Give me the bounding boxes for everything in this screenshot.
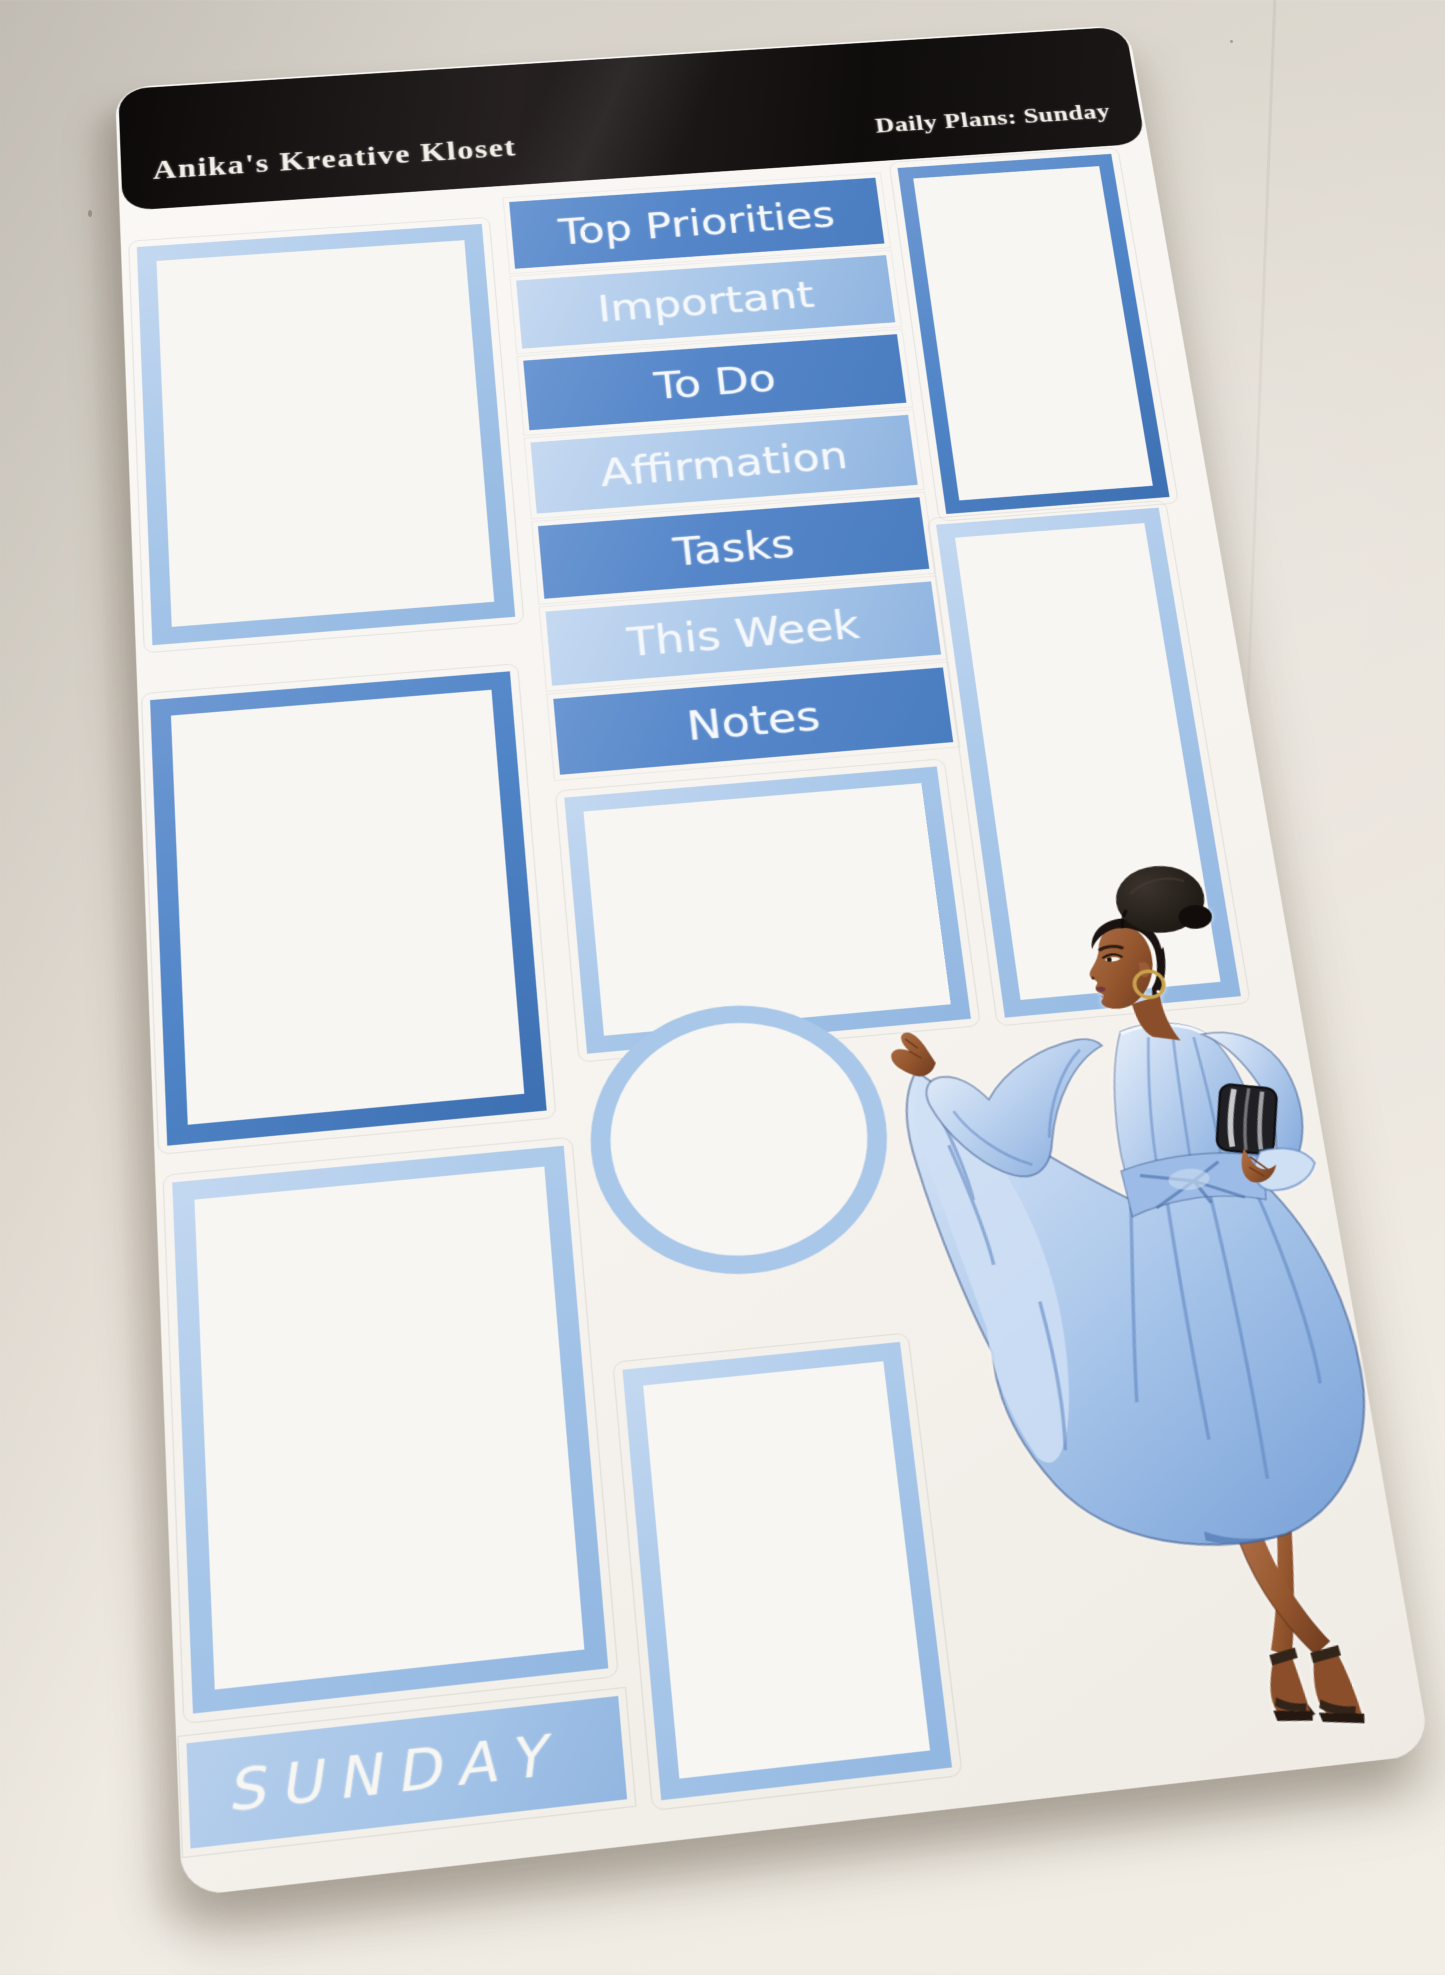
label-sticker-notes: Notes <box>553 667 953 774</box>
label-text: Important <box>595 273 816 329</box>
label-sticker-important: Important <box>516 255 895 349</box>
dust-speck <box>1230 40 1233 43</box>
box-sticker-right-1 <box>897 154 1169 514</box>
label-text: Top Priorities <box>557 193 837 252</box>
box-sticker-left-3 <box>172 1146 608 1714</box>
box-sticker-left-1 <box>137 224 515 645</box>
label-text: Tasks <box>671 521 796 574</box>
label-sticker-tasks: Tasks <box>538 497 929 599</box>
label-sticker-affirmation: Affirmation <box>530 415 917 514</box>
label-sticker-to-do: To Do <box>523 334 906 430</box>
day-label: SUNDAY <box>230 1721 567 1824</box>
label-text: Affirmation <box>598 433 850 495</box>
box-sticker-left-2 <box>150 671 547 1145</box>
label-text: To Do <box>652 356 778 407</box>
brand-title: Anika's Kreative Kloset <box>152 132 518 185</box>
label-sticker-this-week: This Week <box>546 581 942 685</box>
day-sticker-sunday: SUNDAY <box>186 1696 627 1849</box>
sheet-subtitle: Daily Plans: Sunday <box>874 99 1112 138</box>
label-text: This Week <box>625 602 862 666</box>
dust-speck <box>88 210 92 217</box>
label-text: Notes <box>685 692 823 749</box>
label-sticker-top-priorities: Top Priorities <box>509 178 884 269</box>
